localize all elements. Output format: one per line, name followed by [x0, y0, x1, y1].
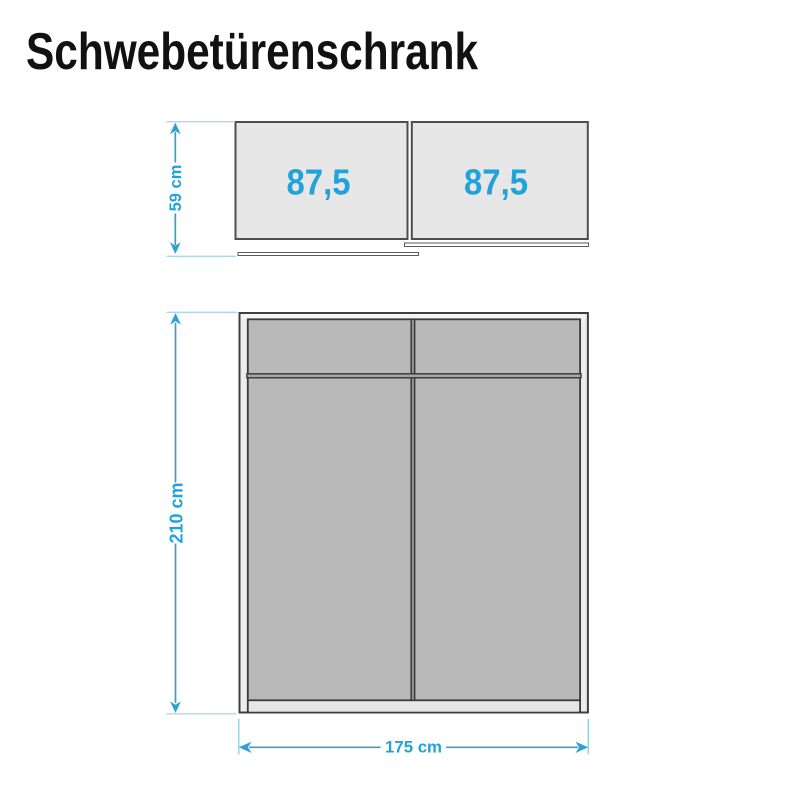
- svg-text:87,5: 87,5: [464, 163, 528, 203]
- svg-text:Schwebetürenschrank: Schwebetürenschrank: [26, 23, 479, 81]
- svg-text:175 cm: 175 cm: [385, 738, 442, 757]
- svg-text:59 cm: 59 cm: [167, 165, 185, 212]
- svg-text:87,5: 87,5: [287, 163, 351, 203]
- svg-text:210 cm: 210 cm: [167, 482, 187, 543]
